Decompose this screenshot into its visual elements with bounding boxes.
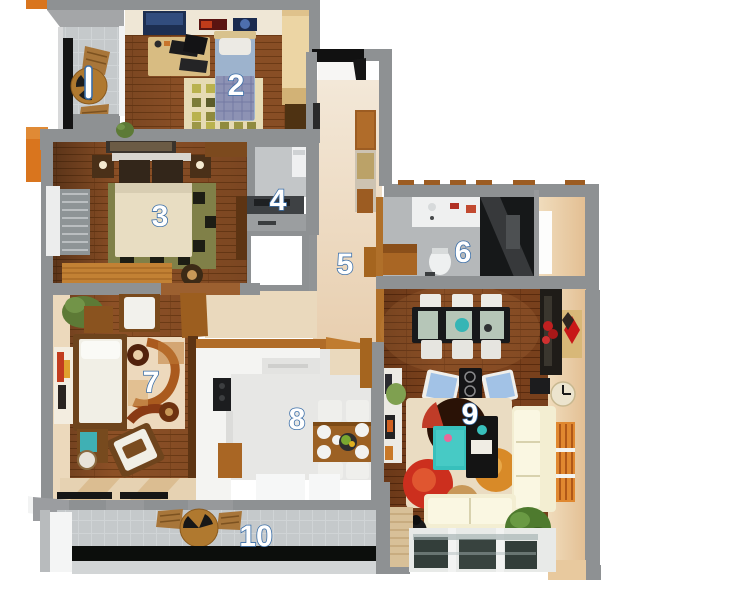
svg-text:6: 6	[455, 236, 472, 269]
svg-text:2: 2	[228, 69, 245, 102]
svg-text:7: 7	[143, 366, 160, 399]
svg-text:5: 5	[337, 248, 354, 281]
svg-text:4: 4	[270, 184, 287, 217]
svg-text:3: 3	[152, 200, 169, 233]
svg-text:9: 9	[462, 398, 479, 431]
svg-text:10: 10	[239, 520, 272, 553]
svg-text:8: 8	[289, 403, 306, 436]
